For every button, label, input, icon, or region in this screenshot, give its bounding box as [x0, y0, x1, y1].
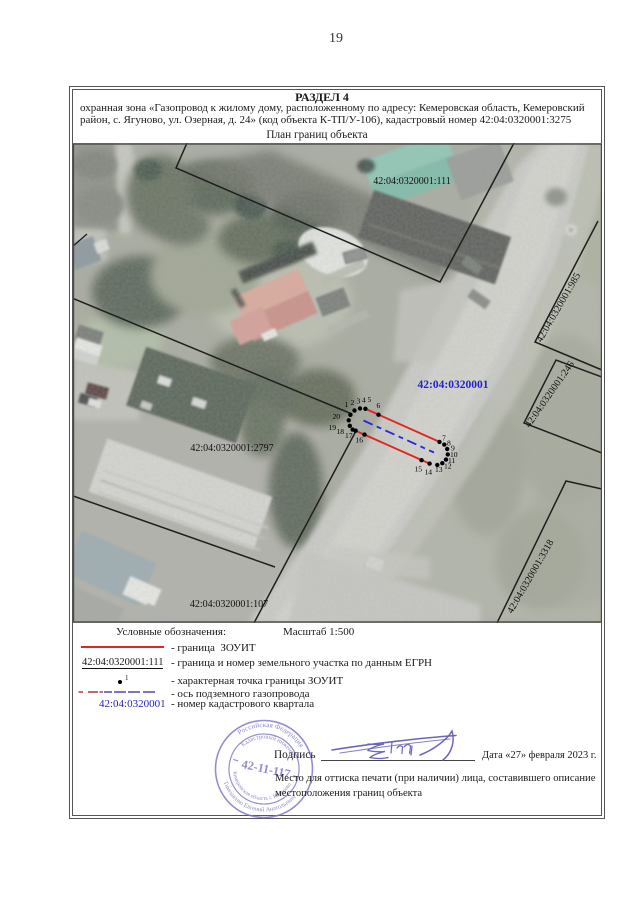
- svg-text:1: 1: [345, 400, 349, 409]
- svg-text:2: 2: [351, 398, 355, 407]
- svg-text:16: 16: [356, 436, 364, 445]
- svg-text:42:04:0320001: 42:04:0320001: [418, 379, 489, 391]
- svg-text:4: 4: [362, 396, 366, 405]
- svg-text:7: 7: [442, 434, 446, 443]
- svg-text:12: 12: [444, 462, 452, 471]
- svg-text:6: 6: [377, 401, 381, 410]
- svg-text:42:04:0320001:2797: 42:04:0320001:2797: [190, 443, 273, 454]
- svg-text:42:04:0320001:111: 42:04:0320001:111: [373, 176, 451, 187]
- svg-text:20: 20: [333, 412, 341, 421]
- svg-text:18: 18: [337, 427, 345, 436]
- svg-text:17: 17: [345, 431, 353, 440]
- svg-text:13: 13: [435, 465, 443, 474]
- svg-text:3: 3: [357, 397, 361, 406]
- svg-text:19: 19: [329, 423, 337, 432]
- svg-text:42:04:0320001:107: 42:04:0320001:107: [190, 599, 268, 610]
- svg-text:15: 15: [415, 465, 423, 474]
- svg-text:14: 14: [425, 468, 433, 477]
- svg-text:5: 5: [368, 395, 372, 404]
